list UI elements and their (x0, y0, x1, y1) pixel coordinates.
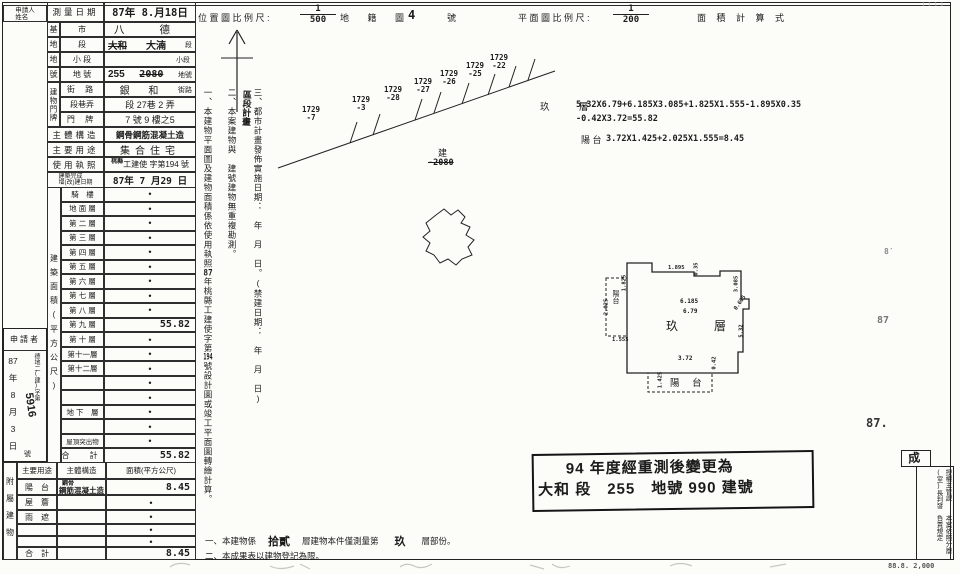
floor-row-value: • (104, 245, 196, 260)
floor-row-label (61, 376, 104, 391)
floor-row-label: 地 面 層 (61, 202, 104, 217)
lot-value: 255 2080 地號 (104, 67, 196, 82)
corner-marks: 1 1 1 1 (922, 2, 944, 8)
attached-row-structure: 鋼骨 鋼筋混凝土造 (57, 479, 106, 495)
attached-row-use (17, 536, 57, 547)
dim-notch-depth: 0.35 (694, 262, 700, 275)
floor-total-value: 55.82 (104, 448, 196, 463)
floor-row-label: 第 四 層 (61, 245, 104, 260)
attached-row-area: • (106, 524, 196, 536)
lot-new-number: 255 (108, 69, 125, 80)
side-note-2: 二、本案建物與 建號建物無重複勘測。 (226, 88, 238, 408)
floor-row-label: 第 二 層 (61, 216, 104, 231)
authorization-stamp-left-column: 本案依照分層負責規定 (918, 515, 952, 557)
floor-total-label: 合 計 (61, 448, 104, 463)
north-arrow-icon (215, 22, 259, 118)
street-label: 街 路 (60, 82, 104, 97)
section-label: 段 (60, 37, 104, 52)
resurvey-change-line-2: 大和 段 255 地號 990 建號 (538, 475, 808, 500)
floor-row-label: 第 七 層 (61, 289, 104, 304)
floor-row-label: 第 五 層 (61, 260, 104, 275)
receipt-doc-suffix: 號 (24, 449, 31, 459)
site-col-char: 號 (47, 67, 60, 82)
dim-left-top: 1.825 (621, 275, 627, 292)
structure-value: 鋼骨鋼筋混凝土造 (104, 127, 196, 142)
receipt-date: 87 年 8 月 3 日 (4, 351, 22, 461)
floor-plan: 1.825 2.025 陽台 1.555 1.895 0.35 3.085 0.… (598, 250, 793, 405)
bottom-margin-smudges (150, 558, 850, 574)
city-label: 市 (60, 22, 104, 37)
floor-row-value: • (104, 202, 196, 217)
bottom-note-1-floors-handwritten: 拾貳 (268, 533, 290, 549)
bottom-note-1-text: 層部份。 (422, 535, 456, 547)
dim-bottom-left: 1.425 (657, 372, 663, 389)
faint-stamp-87-bottom: 87. (866, 416, 888, 430)
location-scale-denominator: 500 (300, 15, 336, 25)
floor-row-label: 第 九 層 (61, 318, 104, 333)
calc-floor-formula-2: -0.42X3.72=55.82 (576, 114, 658, 124)
plan-scale-numerator: 1 (613, 4, 649, 15)
balcony-bottom-label: 陽 台 (670, 375, 707, 389)
resurvey-change-note: 94 年度經重測後變更為 大和 段 255 地號 990 建號 (532, 450, 815, 512)
dim-left: 2.025 (603, 299, 609, 316)
authorization-mark: 成 (907, 448, 921, 466)
plan-scale-label: 平 面 圖 比 例 尺 : (518, 11, 590, 24)
use-label: 主要用途 (47, 142, 104, 157)
dim-bottom-right: 0.42 (712, 356, 718, 369)
license-value: 桃縣 工建使 字第194 號 (104, 157, 196, 172)
side-note-1-year: 87 (203, 269, 213, 278)
floor-row-value: • (104, 289, 196, 304)
lot-unit: 地號 (178, 70, 192, 80)
floor-row-value: 55.82 (104, 318, 196, 333)
floor-row-label: 第十一層 (61, 347, 104, 362)
building-number-value: -2080 (428, 158, 454, 168)
faint-stamp-87-top: 8′ (884, 247, 894, 256)
floor-row-label: 屋頂突出物 (61, 434, 104, 449)
bottom-note-1-text: 層建物本件僅測量第 (302, 535, 379, 547)
plan-scale-denominator: 200 (613, 15, 649, 25)
dim-inner-width-1: 6.185 (680, 298, 698, 305)
area-calc-label: 面 積 計 算 式 (697, 11, 788, 24)
floor-row-label: 第 十 層 (61, 332, 104, 347)
floor-plan-room-label: 玖 層 (666, 317, 738, 334)
calc-balcony-label: 陽 台 (581, 133, 602, 146)
side-note-1-number: 194 (203, 353, 213, 362)
site-col-char: 地 (47, 52, 60, 67)
subsection-label: 小 段 (60, 52, 104, 67)
lane-label: 段巷弄 (60, 97, 104, 112)
authorization-stamp-box: 授權主管課(室)長判發 本案依照分層負責規定 (916, 466, 954, 560)
attached-row-area: 8.45 (106, 479, 196, 495)
dim-inner-width-2: 6.79 (683, 308, 697, 315)
authorization-mark-box: 成 (901, 450, 931, 467)
section-value: 大和 大湳 段 (104, 37, 196, 52)
floor-row-label: 騎 樓 (61, 187, 104, 202)
bottom-note-1: 一、本建物係 拾貳 層建物本件僅測量第 玖 層部份。 (205, 533, 456, 549)
survey-date-value: 87年 8.月18日 (104, 2, 196, 22)
attached-row-structure (57, 510, 106, 524)
floor-row-value: • (104, 231, 196, 246)
bottom-note-1-floor-handwritten: 玖 (395, 533, 406, 549)
floor-row-value: • (104, 390, 196, 405)
side-note-1-text: 一、本建物平面圖及建物面積係依使用執照 (203, 88, 213, 269)
license-label: 使用執照 (47, 157, 104, 172)
lot-number: 1729 -28 (378, 86, 408, 101)
side-note-3: 三、都市計畫發佈實施日期： 年 月 日。(禁建日期： 年 月 日) (252, 88, 264, 508)
faint-stamp-87-middle: 87 (877, 315, 889, 326)
attached-total-label: 合 計 (17, 547, 57, 560)
floor-row-value: • (104, 303, 196, 318)
attached-side-label: 附屬建物 (3, 462, 17, 560)
floor-row-value: • (104, 274, 196, 289)
attached-row-use: 陽 台 (17, 479, 57, 495)
attached-row-area: • (106, 510, 196, 524)
plan-scale-fraction: 1 200 (613, 4, 649, 25)
floor-row-value: • (104, 419, 196, 434)
dim-bottom: 3.72 (678, 355, 692, 362)
subsection-value: 小段 (104, 52, 196, 67)
floor-row-value: • (104, 216, 196, 231)
completion-date-value: 87年 7 月29 日 (104, 172, 196, 188)
attached-table: 主要用途 主體構造 面積(平方公尺) 陽 台 鋼骨 鋼筋混凝土造 8.45 屋 … (17, 462, 196, 560)
floor-row-value: • (104, 405, 196, 420)
location-scale-fraction: 1 500 (300, 4, 336, 25)
attached-row-area: • (106, 495, 196, 510)
lane-value: 段 27巷 2 弄 (104, 97, 196, 112)
location-scale-numerator: 1 (300, 4, 336, 15)
lot-label: 地 號 (60, 67, 104, 82)
floor-row-value: • (104, 434, 196, 449)
balcony-left-label: 陽台 (610, 290, 620, 304)
address-group-label: 建物門牌 (47, 82, 60, 127)
floor-row-label: 第 三 層 (61, 231, 104, 246)
door-label: 門 牌 (60, 112, 104, 127)
attached-header-use: 主要用途 (17, 462, 57, 479)
structure-label: 主體構造 (47, 127, 104, 142)
side-note-1-text: 號設計圖或竣工平面圖轉繪計算。 (203, 362, 213, 505)
attached-row-use: 屋 簷 (17, 495, 57, 510)
section-new-value: 大湳 (146, 37, 166, 52)
completion-date-label: 建築完成 增(改)建日期 (47, 172, 104, 188)
survey-date-label: 測量日期 (47, 2, 104, 22)
map-sheet-number: 4 (408, 8, 415, 22)
attached-row-area: • (106, 536, 196, 547)
site-col-char: 基 (47, 22, 60, 37)
attached-row-structure (57, 524, 106, 536)
attached-row-use: 雨 遮 (17, 510, 57, 524)
license-county-sup: 桃縣 (111, 159, 123, 165)
applicant-receipt-box: 申請者 87 年 8 月 3 日 德地二(建)字第 5916 號 (3, 328, 47, 462)
site-col-char: 地 (47, 37, 60, 52)
dim-top-notch: 1.895 (668, 265, 685, 271)
floor-row-value: • (104, 376, 196, 391)
bottom-note-1-text: 一、本建物係 (205, 535, 256, 547)
calc-balcony-formula: 3.72X1.425+2.025X1.555=8.45 (606, 134, 744, 144)
print-info: 88.8. 2,000 (888, 562, 934, 570)
street-value: 銀 和 街路 (104, 82, 196, 97)
floor-row-label: 第十二層 (61, 361, 104, 376)
floor-row-value: • (104, 347, 196, 362)
dim-left-bottom: 1.555 (612, 337, 629, 343)
applicant-name-box: 申請人 姓名 (3, 5, 47, 22)
floor-row-value: • (104, 361, 196, 376)
floor-row-label: 第 八 層 (61, 303, 104, 318)
dim-right: 5.32 (739, 324, 745, 337)
map-sheet-unit: 號 (447, 11, 456, 24)
lot-number: 1729 -22 (484, 54, 514, 69)
side-note-1-text: 年桃縣工建使字第 (203, 277, 213, 353)
attached-total-structure (57, 547, 106, 560)
door-value: 7 號 9 樓之5 (104, 112, 196, 127)
city-value: 八 德 (104, 22, 196, 37)
street-unit: 街路 (178, 85, 192, 95)
floor-row-value: • (104, 187, 196, 202)
floor-row-value: • (104, 332, 196, 347)
lot-old-number: 2080 (139, 69, 163, 80)
section-unit: 段 (185, 40, 192, 50)
attached-header-structure: 主體構造 (57, 462, 106, 479)
dim-right-top: 3.085 (733, 276, 739, 293)
attached-row-structure (57, 536, 106, 547)
site-address-table: 測量日期 87年 8.月18日 基 市 八 德 地 段 大和 大湳 段 地 小 … (47, 2, 196, 188)
lot-number: 1729 -7 (296, 106, 326, 121)
floor-row-label: 地 下 層 (61, 405, 104, 420)
building-area-table: 騎 樓 • 地 面 層 • 第 二 層 • 第 三 層 • 第 四 層 • 第 … (61, 187, 196, 463)
applicant-title: 申請者 (4, 329, 46, 351)
floor-row-value: • (104, 260, 196, 275)
building-area-side-label: 建築面積(平方公尺) (47, 187, 61, 463)
calc-floor-formula-1: 5.32X6.79+6.185X3.085+1.825X1.555-1.895X… (576, 100, 801, 110)
floor-row-label (61, 419, 104, 434)
attached-header-area: 面積(平方公尺) (106, 462, 196, 479)
floor-row-label: 第 六 層 (61, 274, 104, 289)
street-name: 銀 和 (120, 82, 167, 97)
floor-row-label (61, 390, 104, 405)
attached-structure-main: 鋼筋混凝土造 (59, 487, 104, 494)
section-old-value: 大和 (108, 38, 127, 52)
use-value: 集合住宅 (104, 142, 196, 157)
survey-result-sheet: 申請人 姓名 測量日期 87年 8.月18日 基 市 八 德 地 段 大和 大湳… (0, 0, 960, 574)
cadastral-map-label: 地 籍 圖 (340, 11, 412, 24)
license-number: 工建使 字第194 號 (123, 159, 189, 170)
side-note-1: 一、本建物平面圖及建物面積係依使用執照87年桃縣工建使字第194號設計圖或竣工平… (200, 88, 215, 530)
attached-row-structure (57, 495, 106, 510)
authorization-stamp-right-column: 授權主管課(室)長判發 (918, 469, 952, 515)
location-building-outline (418, 205, 488, 277)
attached-row-use (17, 524, 57, 536)
lot-number: 1729 -3 (346, 96, 376, 111)
